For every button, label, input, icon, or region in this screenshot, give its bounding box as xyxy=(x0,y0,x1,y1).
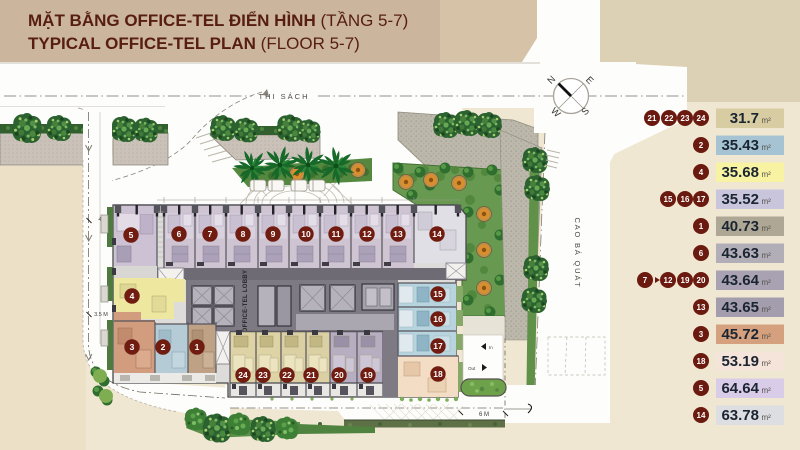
svg-text:m²: m² xyxy=(762,116,772,125)
svg-text:9: 9 xyxy=(271,229,276,239)
svg-text:4: 4 xyxy=(699,168,704,177)
svg-text:10: 10 xyxy=(301,229,311,239)
svg-text:11: 11 xyxy=(332,229,341,239)
svg-text:m²: m² xyxy=(762,359,772,368)
svg-text:6: 6 xyxy=(177,229,182,239)
svg-text:64.64: 64.64 xyxy=(721,380,759,397)
svg-text:Out: Out xyxy=(468,366,476,371)
svg-text:14: 14 xyxy=(697,411,706,420)
svg-text:20: 20 xyxy=(697,276,706,285)
svg-text:18: 18 xyxy=(697,357,706,366)
svg-text:43.64: 43.64 xyxy=(721,272,759,289)
svg-text:22: 22 xyxy=(665,114,674,123)
svg-text:5: 5 xyxy=(699,384,704,393)
svg-text:24: 24 xyxy=(238,370,248,380)
svg-text:22: 22 xyxy=(282,370,292,380)
svg-text:17: 17 xyxy=(697,195,706,204)
svg-text:2: 2 xyxy=(699,141,704,150)
svg-text:12: 12 xyxy=(362,229,372,239)
svg-text:TYPICAL OFFICE-TEL PLAN (FLOOR: TYPICAL OFFICE-TEL PLAN (FLOOR 5-7) xyxy=(28,34,360,53)
svg-text:3.5 M: 3.5 M xyxy=(94,312,108,318)
svg-text:2: 2 xyxy=(161,342,166,352)
svg-text:17: 17 xyxy=(433,341,443,351)
svg-text:m²: m² xyxy=(762,278,772,287)
svg-text:4: 4 xyxy=(130,291,135,301)
svg-text:35.43: 35.43 xyxy=(721,137,759,154)
svg-text:1: 1 xyxy=(195,342,200,352)
svg-text:16: 16 xyxy=(681,195,690,204)
svg-text:m²: m² xyxy=(762,332,772,341)
svg-text:13: 13 xyxy=(697,303,706,312)
svg-text:m²: m² xyxy=(762,251,772,260)
svg-text:15: 15 xyxy=(433,289,443,299)
svg-text:35.52: 35.52 xyxy=(721,191,759,208)
svg-text:m²: m² xyxy=(762,386,772,395)
svg-text:3: 3 xyxy=(699,330,704,339)
svg-text:19: 19 xyxy=(681,276,690,285)
svg-text:31.7: 31.7 xyxy=(730,110,759,127)
svg-text:3: 3 xyxy=(130,342,135,352)
svg-text:5: 5 xyxy=(129,230,134,240)
svg-text:20: 20 xyxy=(334,370,344,380)
svg-text:14: 14 xyxy=(432,229,442,239)
svg-text:63.78: 63.78 xyxy=(721,407,759,424)
svg-text:21: 21 xyxy=(306,370,316,380)
svg-text:40.73: 40.73 xyxy=(721,218,759,235)
svg-text:43.65: 43.65 xyxy=(721,299,759,316)
svg-text:23: 23 xyxy=(681,114,690,123)
svg-text:THI SÁCH: THI SÁCH xyxy=(258,92,309,101)
svg-text:m²: m² xyxy=(762,143,772,152)
svg-text:12: 12 xyxy=(664,276,673,285)
svg-text:1: 1 xyxy=(699,222,704,231)
svg-text:In: In xyxy=(489,345,493,350)
svg-text:m²: m² xyxy=(762,170,772,179)
svg-text:7: 7 xyxy=(643,276,648,285)
svg-text:19: 19 xyxy=(363,370,373,380)
svg-text:6: 6 xyxy=(699,249,704,258)
svg-text:24: 24 xyxy=(697,114,706,123)
svg-text:15: 15 xyxy=(664,195,673,204)
svg-text:8: 8 xyxy=(241,229,246,239)
svg-text:16: 16 xyxy=(433,314,443,324)
svg-text:m²: m² xyxy=(762,224,772,233)
svg-text:OFFICE-TEL LOBBY: OFFICE-TEL LOBBY xyxy=(243,270,249,333)
svg-text:43.63: 43.63 xyxy=(721,245,759,262)
svg-text:6 M: 6 M xyxy=(479,412,489,418)
svg-text:m²: m² xyxy=(762,413,772,422)
svg-text:18: 18 xyxy=(433,369,443,379)
svg-text:35.68: 35.68 xyxy=(721,164,759,181)
svg-text:MẶT BẰNG OFFICE-TEL ĐIỂN HÌNH: MẶT BẰNG OFFICE-TEL ĐIỂN HÌNH (TẦNG 5-7) xyxy=(28,11,408,30)
svg-text:7: 7 xyxy=(208,229,213,239)
svg-text:m²: m² xyxy=(762,197,772,206)
svg-text:21: 21 xyxy=(648,114,657,123)
svg-text:CAO BÁ QUÁT: CAO BÁ QUÁT xyxy=(573,217,582,288)
svg-text:m²: m² xyxy=(762,305,772,314)
svg-text:23: 23 xyxy=(258,370,268,380)
svg-text:45.72: 45.72 xyxy=(721,326,759,343)
svg-text:53.19: 53.19 xyxy=(721,353,759,370)
svg-text:13: 13 xyxy=(393,229,403,239)
